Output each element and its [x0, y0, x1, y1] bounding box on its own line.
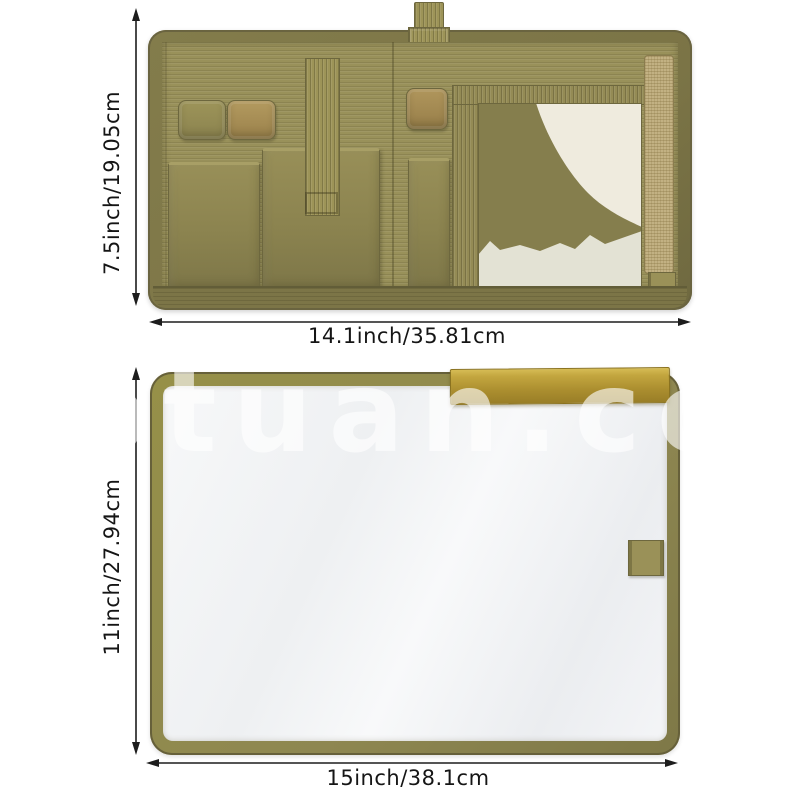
clear-id-window [478, 103, 642, 289]
window-frame-left [452, 85, 480, 294]
organizer-panel-open-view [148, 30, 692, 310]
vertical-double-arrow-top [126, 7, 146, 307]
elastic-loop-1 [178, 100, 226, 140]
velcro-strap-right [644, 55, 674, 274]
right-side-tab [628, 540, 664, 576]
small-elastic-loop [406, 88, 448, 130]
watermark-text: yptuan.co [0, 348, 750, 478]
bottom-edge-band [153, 286, 687, 308]
bottom-view-height-label: 11inch/27.94cm [100, 479, 124, 656]
product-image-canvas: { "watermark": { "text": "yptuan.co", "c… [0, 0, 800, 800]
window-frame-top [452, 85, 646, 105]
elastic-loop-2 [227, 100, 276, 140]
webbing-stitch-box [305, 192, 338, 214]
bottom-view-width-label: 15inch/38.1cm [326, 766, 489, 790]
top-view-height-label: 7.5inch/19.05cm [100, 91, 124, 275]
pen-sleeve-pocket [408, 158, 450, 294]
top-view-width-label: 14.1inch/35.81cm [308, 324, 506, 348]
seam-divider [392, 42, 394, 288]
storage-pocket-left [168, 162, 260, 292]
seam-left [165, 42, 167, 288]
